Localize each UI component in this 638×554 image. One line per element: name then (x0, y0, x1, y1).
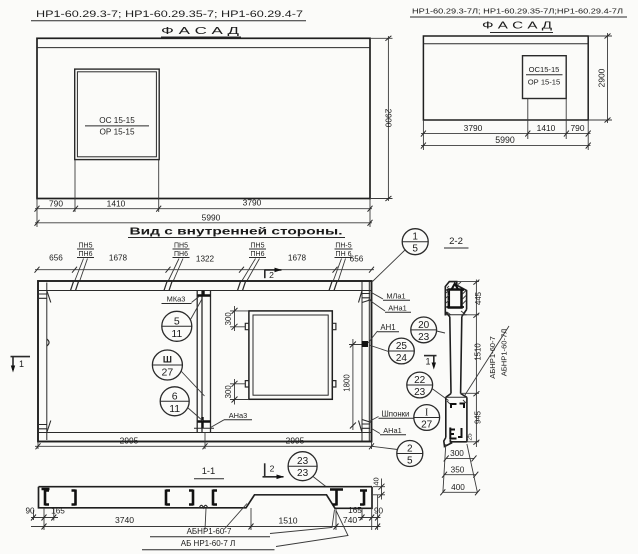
svg-text:ОР 15-15: ОР 15-15 (99, 128, 134, 137)
svg-text:ПН5: ПН5 (79, 243, 93, 250)
svg-text:Ф А С А Д: Ф А С А Д (482, 21, 552, 32)
svg-text:2-2: 2-2 (449, 236, 463, 247)
svg-text:350: 350 (451, 465, 465, 474)
svg-text:165: 165 (51, 507, 65, 516)
svg-text:20: 20 (418, 320, 430, 331)
svg-text:ПН6: ПН6 (174, 251, 188, 258)
svg-text:6: 6 (172, 390, 178, 402)
svg-text:165: 165 (348, 506, 362, 515)
svg-text:300: 300 (450, 449, 464, 458)
svg-text:1410: 1410 (107, 198, 126, 208)
svg-text:23: 23 (297, 456, 309, 467)
svg-text:1678: 1678 (288, 254, 307, 263)
svg-text:40: 40 (372, 477, 381, 485)
svg-text:5990: 5990 (495, 135, 515, 145)
svg-text:Ф А С А Д: Ф А С А Д (161, 25, 239, 37)
svg-text:3740: 3740 (115, 515, 134, 525)
svg-text:1800: 1800 (343, 374, 352, 392)
svg-text:1510: 1510 (278, 516, 297, 526)
svg-text:АБ НР1-60-7 Л: АБ НР1-60-7 Л (181, 539, 236, 548)
svg-text:1322: 1322 (196, 255, 215, 264)
svg-text:АНа3: АНа3 (229, 411, 248, 420)
svg-text:5990: 5990 (202, 212, 221, 222)
svg-text:23: 23 (418, 332, 430, 343)
svg-text:25: 25 (396, 341, 408, 352)
svg-text:5: 5 (407, 456, 413, 467)
svg-text:2995: 2995 (120, 436, 139, 446)
svg-text:3790: 3790 (464, 123, 483, 133)
svg-text:23: 23 (414, 387, 426, 398)
svg-text:1-1: 1-1 (202, 465, 216, 476)
svg-text:1: 1 (425, 357, 430, 367)
svg-text:АНа1: АНа1 (388, 304, 407, 313)
svg-text:22: 22 (414, 375, 426, 386)
svg-text:АН1: АН1 (380, 323, 395, 332)
svg-text:1678: 1678 (109, 254, 128, 263)
svg-text:300: 300 (224, 385, 233, 399)
svg-text:945: 945 (474, 410, 483, 424)
svg-text:27: 27 (421, 420, 433, 431)
svg-text:2900: 2900 (597, 68, 607, 87)
svg-text:740: 740 (343, 515, 358, 525)
svg-text:790: 790 (571, 123, 585, 133)
svg-text:ОР 15-15: ОР 15-15 (528, 78, 561, 87)
svg-text:5: 5 (412, 244, 418, 255)
svg-text:5: 5 (174, 315, 180, 327)
svg-text:АБНР1-60-7Л: АБНР1-60-7Л (500, 329, 509, 377)
svg-text:790: 790 (49, 198, 63, 208)
svg-text:ПН5: ПН5 (251, 243, 265, 250)
svg-text:445: 445 (474, 291, 483, 305)
svg-text:400: 400 (451, 483, 465, 492)
svg-text:2: 2 (270, 464, 275, 474)
svg-text:ОС15-15: ОС15-15 (529, 65, 560, 74)
svg-text:I: I (425, 408, 428, 419)
svg-text:1: 1 (412, 232, 418, 243)
svg-text:ПН-5: ПН-5 (335, 243, 351, 250)
svg-text:11: 11 (169, 403, 180, 415)
svg-text:656: 656 (49, 254, 63, 263)
svg-text:ПН 6: ПН 6 (336, 251, 352, 258)
svg-text:Ш: Ш (163, 355, 172, 365)
svg-text:АНа1: АНа1 (383, 426, 402, 435)
svg-text:Шпонки: Шпонки (382, 410, 410, 419)
svg-text:23: 23 (297, 468, 309, 479)
svg-text:ОС 15-15: ОС 15-15 (99, 116, 135, 125)
svg-text:ПН6: ПН6 (251, 251, 265, 258)
svg-text:656: 656 (350, 255, 364, 264)
svg-text:25: 25 (467, 433, 474, 441)
svg-text:1410: 1410 (537, 123, 556, 133)
svg-text:ПН5: ПН5 (174, 243, 188, 250)
svg-text:90: 90 (25, 506, 35, 515)
svg-text:МЛа1: МЛа1 (386, 292, 405, 301)
svg-text:1: 1 (19, 359, 24, 369)
svg-text:2: 2 (407, 444, 413, 455)
svg-text:2995: 2995 (286, 436, 305, 446)
svg-text:НР1-60.29.3-7Л; НР1-60.29.35-7: НР1-60.29.3-7Л; НР1-60.29.35-7Л;НР1-60.2… (412, 7, 623, 16)
svg-text:1510: 1510 (474, 343, 483, 361)
svg-text:90: 90 (374, 507, 384, 516)
svg-text:11: 11 (171, 328, 182, 340)
svg-text:НР1-60.29.3-7; НР1-60.29.35-7: НР1-60.29.3-7; НР1-60.29.35-7; НР1-60.29… (36, 9, 303, 19)
svg-text:3790: 3790 (243, 197, 262, 207)
svg-text:2: 2 (269, 270, 274, 280)
svg-text:Вид с внутренней стороны.: Вид с внутренней стороны. (130, 227, 343, 238)
svg-text:300: 300 (224, 312, 233, 326)
svg-text:2900: 2900 (384, 109, 394, 128)
svg-text:24: 24 (396, 353, 408, 364)
svg-text:МКа3: МКа3 (167, 295, 186, 304)
svg-text:ПН6: ПН6 (79, 251, 93, 258)
svg-text:27: 27 (162, 367, 174, 379)
